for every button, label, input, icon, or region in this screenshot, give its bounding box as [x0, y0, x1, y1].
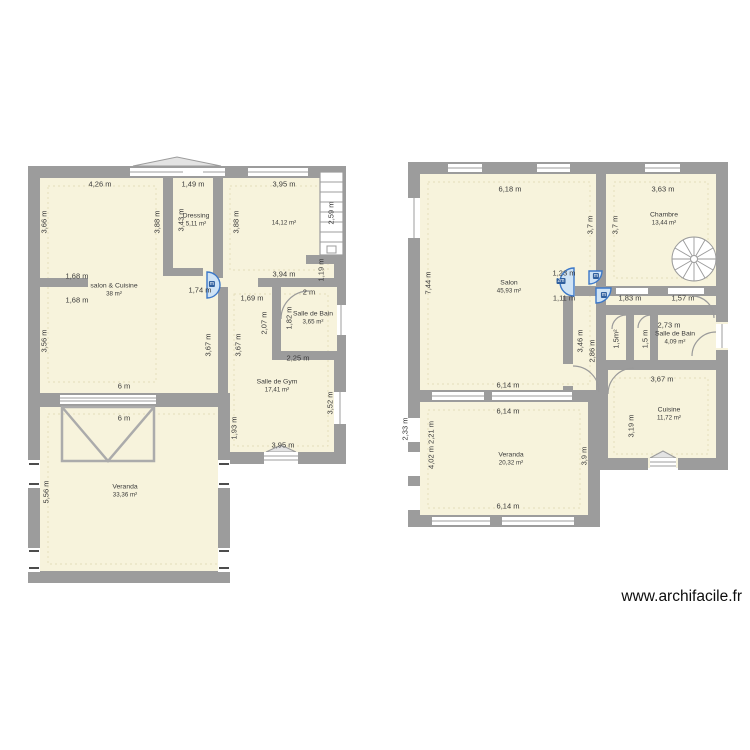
room-label: Salle de Bain3,65 m²	[293, 311, 333, 326]
dimension-label: 6,14 m	[497, 502, 520, 511]
dimension-label: 6,14 m	[497, 407, 520, 416]
dimension-label: 6,18 m	[499, 185, 522, 194]
dimension-label: 2,59 m	[327, 202, 336, 225]
room-name: Veranda	[112, 484, 137, 492]
dimension-label: 6 m	[118, 414, 131, 423]
dimension-label: 1,93 m	[230, 417, 239, 440]
room-label: Veranda20,32 m²	[498, 452, 523, 467]
dimension-label: 5,56 m	[42, 481, 51, 504]
dimension-label: 3,95 m	[273, 180, 296, 189]
room-area: 5,11 m²	[183, 220, 210, 227]
room-label: Salle de Bain4,09 m²	[655, 331, 695, 346]
dimension-label: 2 m	[303, 288, 316, 297]
dimension-label: 3,67 m	[204, 334, 213, 357]
room-name: salon & Cuisine	[90, 283, 137, 291]
dimension-label: 4,26 m	[89, 180, 112, 189]
dimension-label: 2,25 m	[287, 354, 310, 363]
room-name: Dressing	[183, 213, 210, 221]
room-name: Chambre	[650, 212, 678, 220]
room-label: salon & Cuisine38 m²	[90, 283, 137, 298]
dimension-label: 1,19 m	[317, 259, 326, 282]
dimension-label: 7,44 m	[424, 272, 433, 295]
watermark: www.archifacile.fr	[621, 588, 742, 606]
dimension-label: 1,68 m	[66, 296, 89, 305]
door-size-tag: m	[601, 292, 607, 298]
door-size-tag: m	[593, 273, 599, 279]
room-label: Salle de Gym17,41 m²	[257, 379, 298, 394]
room-label: Veranda33,36 m²	[112, 484, 137, 499]
door-size-tag: m	[209, 281, 215, 287]
room-name: Salle de Gym	[257, 379, 298, 387]
room-name: Salle de Bain	[293, 311, 333, 319]
room-label: Salon45,93 m²	[497, 280, 521, 295]
room-area: 20,32 m²	[498, 459, 523, 466]
dimension-label: 3,88 m	[232, 211, 241, 234]
dimension-label: 1,83 m	[619, 294, 642, 303]
room-area: 3,65 m²	[293, 318, 333, 325]
dimension-label: 1,49 m	[182, 180, 205, 189]
dimension-label: 3,63 m	[652, 185, 675, 194]
dimension-label: 3,46 m	[576, 330, 585, 353]
dimension-label: 2,33 m	[401, 418, 410, 441]
dimension-label: 3,67 m	[234, 334, 243, 357]
dimension-label: 2,86 m	[588, 340, 597, 363]
dimension-label: 2,07 m	[260, 312, 269, 335]
dimension-label: 3,56 m	[40, 330, 49, 353]
dimension-label: 3,7 m	[611, 216, 620, 235]
dimension-label: 1,69 m	[241, 294, 264, 303]
room-label: Dressing5,11 m²	[183, 213, 210, 228]
door-size-tag: 2m	[557, 278, 566, 284]
room-area: 4,09 m²	[655, 338, 695, 345]
room-label: Chambre13,44 m²	[650, 212, 678, 227]
dimension-label: 3,66 m	[40, 211, 49, 234]
room-label: 14,12 m²	[272, 219, 296, 226]
room-name: Salle de Bain	[655, 331, 695, 339]
dimension-label: 3,67 m	[651, 375, 674, 384]
room-name: Salon	[497, 280, 521, 288]
dimension-label: 2,73 m	[658, 321, 681, 330]
dimension-label: 1,5m²	[612, 329, 621, 348]
dimension-label: 3,52 m	[326, 392, 335, 415]
room-area: 33,36 m²	[112, 491, 137, 498]
room-name: Veranda	[498, 452, 523, 460]
room-label: Cuisine11,72 m²	[657, 407, 681, 422]
dimension-label: 1,57 m	[672, 294, 695, 303]
dimension-label: 3,19 m	[627, 415, 636, 438]
room-area: 14,12 m²	[272, 219, 296, 226]
dimension-label: 6 m	[118, 382, 131, 391]
dimension-label: 4,02 m 2,21 m	[427, 421, 436, 469]
dimension-label: 1,11 m	[553, 294, 575, 303]
dimension-label: 3,7 m	[586, 216, 595, 235]
room-area: 45,93 m²	[497, 287, 521, 294]
room-area: 17,41 m²	[257, 386, 298, 393]
dimension-label: 3,95 m	[272, 441, 295, 450]
dimension-label: 1,68 m	[66, 272, 89, 281]
room-area: 11,72 m²	[657, 414, 681, 421]
dimension-label: 3,94 m	[273, 270, 296, 279]
dimension-label: 1,23 m	[553, 269, 576, 278]
dimension-label: 3,88 m	[153, 211, 162, 234]
room-name: Cuisine	[657, 407, 681, 415]
dimension-label: 6,14 m	[497, 381, 520, 390]
labels-layer: 4,26 m1,49 m3,95 m3,66 m3,88 m3,43 m3,88…	[0, 0, 750, 750]
dimension-label: 3,9 m	[580, 447, 589, 466]
dimension-label: 1,5 m	[641, 330, 650, 349]
floorplan-canvas: 4,26 m1,49 m3,95 m3,66 m3,88 m3,43 m3,88…	[0, 0, 750, 750]
room-area: 13,44 m²	[650, 219, 678, 226]
dimension-label: 1,74 m	[189, 286, 212, 295]
room-area: 38 m²	[90, 290, 137, 297]
